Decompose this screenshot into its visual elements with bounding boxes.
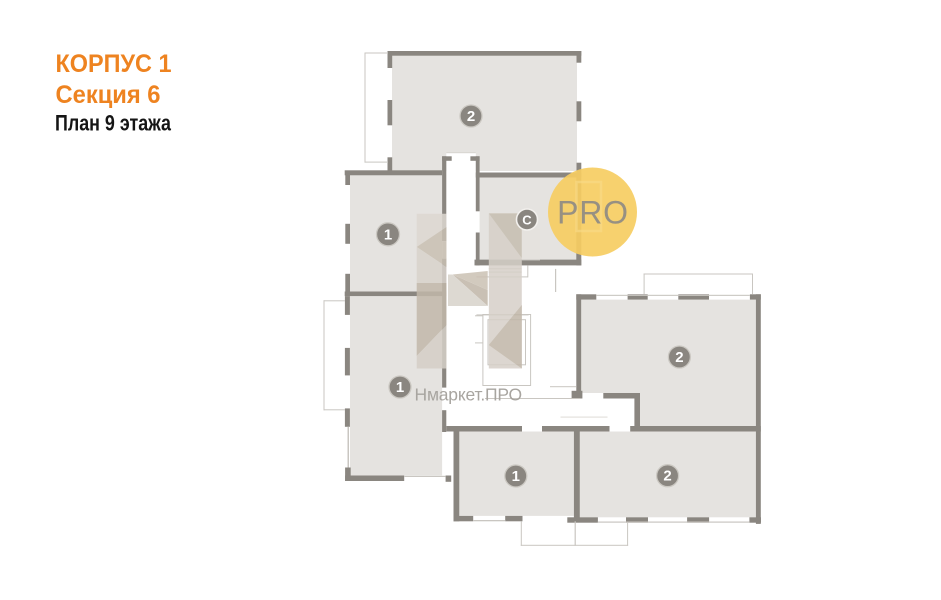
svg-text:План 9 этажа: План 9 этажа (55, 110, 172, 135)
svg-text:2: 2 (467, 108, 475, 125)
svg-text:2: 2 (675, 349, 683, 366)
svg-text:C: C (522, 212, 532, 227)
svg-text:PRO: PRO (557, 195, 629, 231)
svg-text:Нмаркет.ПРО: Нмаркет.ПРО (415, 384, 522, 404)
svg-text:1: 1 (396, 379, 404, 396)
svg-text:2: 2 (663, 468, 671, 485)
svg-text:КОРПУС 1: КОРПУС 1 (56, 50, 172, 78)
svg-text:1: 1 (512, 468, 520, 485)
svg-text:Секция 6: Секция 6 (56, 81, 161, 109)
svg-text:1: 1 (384, 226, 392, 243)
